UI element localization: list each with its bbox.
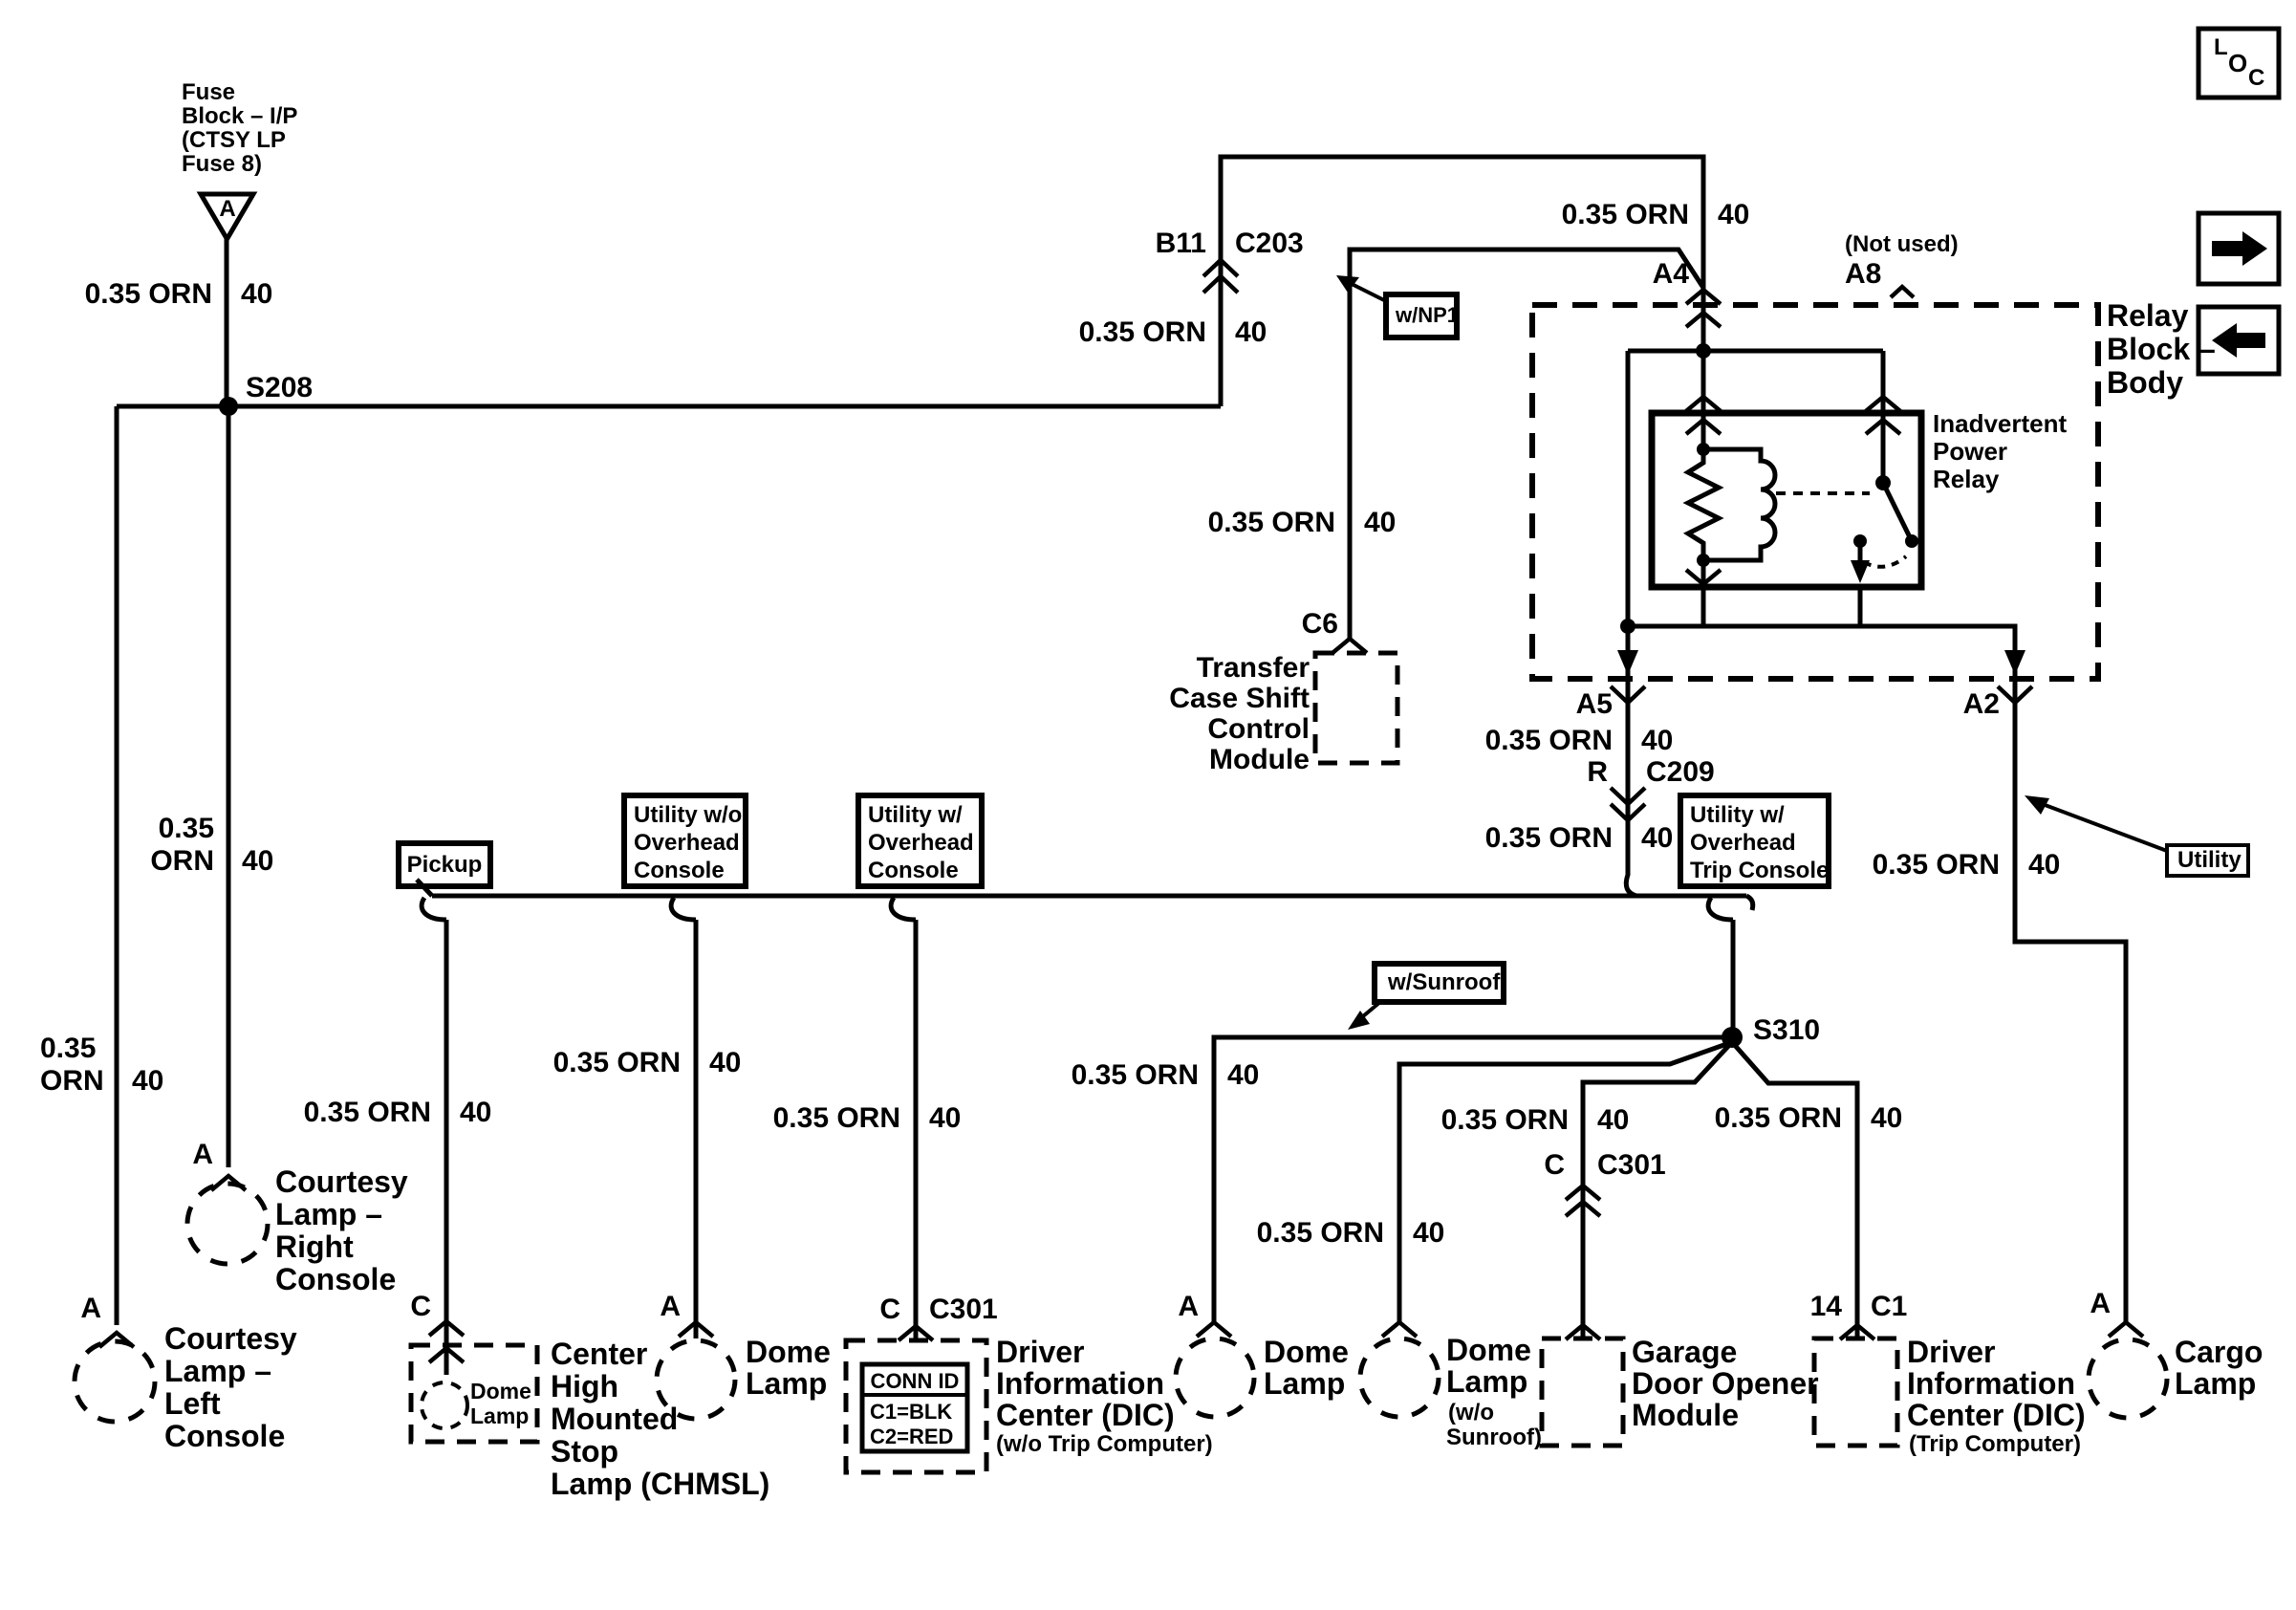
circuit-label: 40 <box>242 847 273 876</box>
circuit-label: 40 <box>1235 318 1267 347</box>
dic-trip-line3: Center (DIC) <box>1907 1400 2086 1430</box>
chmsl-line5: Lamp (CHMSL) <box>551 1469 769 1499</box>
transfer-case-label-line4: Module <box>1209 746 1310 774</box>
option-utility-wo-line1: Utility w/o <box>634 804 742 827</box>
connector-c301-label: C301 <box>929 1295 998 1324</box>
s208-splice-dot <box>219 397 238 416</box>
wire-label-line2: ORN <box>40 1067 104 1096</box>
option-utility-trip-line1: Utility w/ <box>1690 804 1785 827</box>
cargo-line1: Cargo <box>2175 1337 2263 1367</box>
pin-a-label: A <box>2090 1290 2111 1318</box>
pin-c-label: C <box>410 1293 431 1321</box>
dic-wo-note: (w/o Trip Computer) <box>996 1433 1213 1456</box>
wire-label-line2: ORN <box>150 847 214 876</box>
relay-name-line1: Inadvertent <box>1933 411 2067 436</box>
pin-c-label: C <box>879 1295 900 1324</box>
transfer-case-label-line1: Transfer <box>1197 654 1310 683</box>
circuit-label: 40 <box>460 1099 491 1127</box>
dic-trip-note: (Trip Computer) <box>1909 1433 2081 1456</box>
option-utility-w-line1: Utility w/ <box>868 804 963 827</box>
dic-wo-line1: Driver <box>996 1337 1085 1367</box>
wire-label: 0.35 ORN <box>1715 1104 1842 1133</box>
relay-resistor <box>1688 449 1719 560</box>
transfer-case-label-line3: Control <box>1207 715 1310 744</box>
option-utility-w-line2: Overhead <box>868 832 974 855</box>
circuit-label: 40 <box>1871 1104 1902 1133</box>
arrow-left-icon-head <box>2212 323 2237 358</box>
dic-wo-line3: Center (DIC) <box>996 1400 1175 1430</box>
arrow-right-icon-head <box>2242 231 2267 266</box>
courtesy-right-line1: Courtesy <box>275 1166 408 1197</box>
conn-id-row1: C1=BLK <box>870 1402 952 1423</box>
wire-label: 0.35 ORN <box>304 1099 431 1127</box>
transfer-case-label-line2: Case Shift <box>1169 685 1310 713</box>
dome-lamp-3-note2: Sunroof) <box>1446 1426 1542 1449</box>
circuit-label: 40 <box>1641 727 1673 755</box>
connector-c1-label: C1 <box>1871 1293 1907 1321</box>
connector-b11-label: B11 <box>1156 229 1206 258</box>
fuse-block-label-line3: (CTSY LP <box>182 129 286 152</box>
wiring-diagram-page: Fuse Block – I/P (CTSY LP Fuse 8) A 0.35… <box>0 0 2296 1610</box>
option-utility-wo-line2: Overhead <box>634 832 740 855</box>
conn-id-row2: C2=RED <box>870 1426 953 1447</box>
connector-a4-label: A4 <box>1653 260 1689 289</box>
dome-lamp-1-line1: Dome <box>746 1337 831 1367</box>
chmsl-line1: Center <box>551 1338 647 1369</box>
a2-exit-arrow <box>2004 650 2025 675</box>
not-used-note: (Not used) <box>1845 233 1959 256</box>
dome-lamp-symbol-2 <box>1176 1338 1254 1417</box>
loc-icon-letter-l: L <box>2214 36 2228 59</box>
relay-block-label-line1: Relay <box>2107 300 2188 331</box>
connector-a5-label: A5 <box>1576 690 1613 719</box>
chmsl-dome-lamp-symbol <box>422 1382 467 1428</box>
circuit-label: 40 <box>241 280 272 309</box>
np1-pointer-line <box>1348 282 1388 302</box>
chmsl-line2: High <box>551 1371 618 1402</box>
circuit-label: 40 <box>1364 509 1396 537</box>
pin-a-label: A <box>192 1141 213 1169</box>
courtesy-left-line2: Lamp – <box>164 1356 271 1386</box>
fuse-block-label-line2: Block – I/P <box>182 105 297 128</box>
arrow-left-icon <box>2235 333 2265 348</box>
option-utility-wo-line3: Console <box>634 859 725 882</box>
courtesy-left-lamp-symbol <box>75 1341 155 1422</box>
pin-a-label: A <box>80 1295 101 1323</box>
wire-label: 0.35 ORN <box>553 1049 681 1077</box>
connector-c203-label: C203 <box>1235 229 1304 258</box>
dashed-shapes <box>75 305 2167 1472</box>
wire-label: 0.35 ORN <box>773 1104 900 1133</box>
circuit-label: 40 <box>1413 1219 1444 1248</box>
splice-s310-label: S310 <box>1753 1016 1820 1045</box>
loc-icon-letter-o: O <box>2228 51 2247 76</box>
circuit-label: 40 <box>1718 201 1749 229</box>
arrowheads <box>1336 275 2049 1030</box>
splice-dots <box>219 343 1918 1048</box>
utility-pointer-line <box>2040 803 2167 851</box>
sunroof-tag: w/Sunroof <box>1388 971 1500 994</box>
dome-lamp-3-line2: Lamp <box>1446 1366 1527 1397</box>
connector-c6-label: C6 <box>1302 610 1338 639</box>
connector-c209-label: C209 <box>1646 758 1715 787</box>
courtesy-left-line3: Left <box>164 1388 221 1419</box>
chmsl-line4: Stop <box>551 1436 618 1467</box>
wire-label: 0.35 ORN <box>85 280 212 309</box>
dome-lamp-1-line2: Lamp <box>746 1368 827 1399</box>
wire-label: 0.35 ORN <box>1441 1106 1569 1135</box>
wire-label: 0.35 ORN <box>1079 318 1206 347</box>
connector-c301-label: C301 <box>1597 1151 1666 1180</box>
a5-exit-arrow <box>1617 650 1638 675</box>
courtesy-right-line3: Right <box>275 1231 354 1262</box>
dome-lamp-2-line1: Dome <box>1264 1337 1349 1367</box>
connector-a8-label: A8 <box>1845 260 1881 289</box>
option-pickup-label: Pickup <box>407 854 483 877</box>
wire-label-line1: 0.35 <box>40 1034 96 1063</box>
garage-line1: Garage <box>1632 1337 1737 1367</box>
relay-contact-arc <box>1864 556 1906 567</box>
pin-14-label: 14 <box>1810 1293 1842 1321</box>
np1-tag: w/NP1 <box>1396 305 1459 326</box>
dome-lamp-symbol-3 <box>1360 1338 1439 1417</box>
garage-line2: Door Opener <box>1632 1368 1819 1399</box>
chmsl-dome-line2: Lamp <box>470 1405 529 1427</box>
relay-contact-arrow <box>1851 560 1870 583</box>
relay-name-line3: Relay <box>1933 467 1999 491</box>
chmsl-line3: Mounted <box>551 1403 678 1434</box>
cargo-lamp-symbol <box>2089 1339 2167 1418</box>
pin-c-label: C <box>1544 1151 1565 1180</box>
wire-label: 0.35 ORN <box>1072 1061 1199 1090</box>
circuit-label: 40 <box>709 1049 741 1077</box>
option-utility-trip-line2: Overhead <box>1690 832 1796 855</box>
pin-a-label: A <box>1178 1293 1199 1321</box>
connector-a2-label: A2 <box>1963 690 2000 719</box>
fuse-terminal-letter: A <box>219 198 235 221</box>
wire-label-line1: 0.35 <box>159 815 214 843</box>
courtesy-left-line4: Console <box>164 1421 285 1451</box>
wire-label: 0.35 ORN <box>1485 824 1613 853</box>
wire-label: 0.35 ORN <box>1485 727 1613 755</box>
dic-trip-outline <box>1814 1338 1897 1446</box>
s310-splice-dot <box>1722 1027 1743 1048</box>
dome-lamp-3-line1: Dome <box>1446 1335 1531 1365</box>
wire-label: 0.35 ORN <box>1873 851 2000 880</box>
circuit-label: 40 <box>1597 1106 1629 1135</box>
dic-trip-line1: Driver <box>1907 1337 1996 1367</box>
courtesy-right-line2: Lamp – <box>275 1199 382 1229</box>
transfer-case-outline <box>1315 653 1397 763</box>
option-utility-w-line3: Console <box>868 859 959 882</box>
wire-label: 0.35 ORN <box>1208 509 1335 537</box>
garage-outline <box>1542 1338 1623 1446</box>
wire-label: 0.35 ORN <box>1562 201 1689 229</box>
relay-name-line2: Power <box>1933 439 2007 464</box>
relay-switch-blade <box>1883 483 1912 541</box>
arrow-right-icon <box>2212 241 2242 256</box>
dic-trip-line2: Information <box>1907 1368 2075 1399</box>
cargo-line2: Lamp <box>2175 1368 2256 1399</box>
garage-line3: Module <box>1632 1400 1739 1430</box>
dic-wo-line2: Information <box>996 1368 1164 1399</box>
pin-a-label: A <box>660 1293 681 1321</box>
chmsl-dome-line1: Dome <box>470 1381 531 1403</box>
option-utility-trip-line3: Trip Console <box>1690 859 1829 882</box>
wire-label: 0.35 ORN <box>1257 1219 1384 1248</box>
courtesy-right-line4: Console <box>275 1264 396 1295</box>
circuit-label: 40 <box>132 1067 163 1096</box>
relay-coil <box>1703 449 1775 560</box>
pointer-lines <box>1348 282 2167 1021</box>
dome-lamp-2-line2: Lamp <box>1264 1368 1345 1399</box>
circuit-label: 40 <box>1641 824 1673 853</box>
relay-block-label-line3: Body <box>2107 367 2183 398</box>
fuse-block-label-line4: Fuse 8) <box>182 153 262 176</box>
nav-icons <box>2212 231 2267 358</box>
loc-icon-letter-c: C <box>2248 67 2264 90</box>
courtesy-left-line1: Courtesy <box>164 1323 297 1354</box>
splice-s208-label: S208 <box>246 374 313 402</box>
relay-block-label-line2: Block – <box>2107 334 2216 364</box>
utility-tag: Utility <box>2177 849 2242 872</box>
courtesy-right-lamp-symbol <box>187 1184 268 1264</box>
fuse-block-label-line1: Fuse <box>182 81 235 104</box>
conn-id-header: CONN ID <box>871 1371 960 1392</box>
connector-r-label: R <box>1587 758 1608 787</box>
circuit-label: 40 <box>2028 851 2060 880</box>
circuit-label: 40 <box>1227 1061 1259 1090</box>
circuit-label: 40 <box>929 1104 961 1133</box>
dome-lamp-3-note1: (w/o <box>1448 1402 1494 1425</box>
